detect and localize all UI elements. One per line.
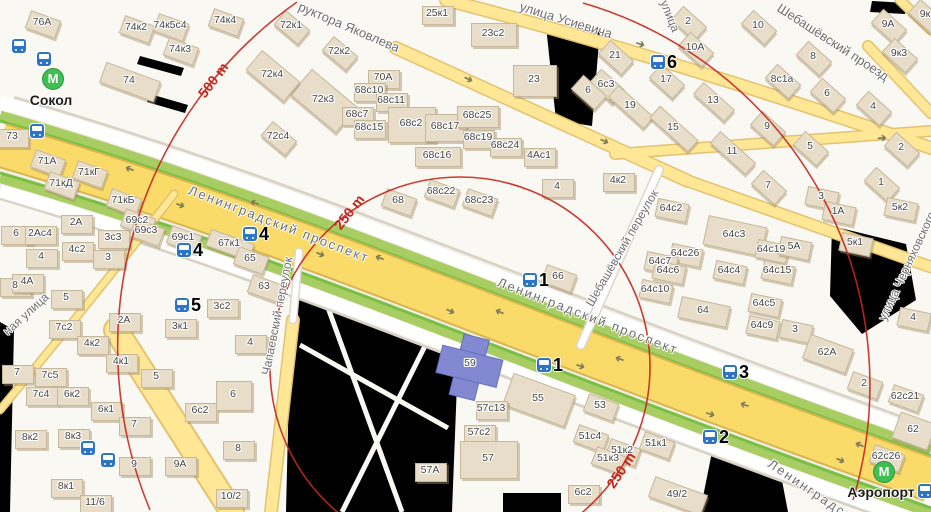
building-number: 63 xyxy=(258,280,270,292)
building-number: 5 xyxy=(807,140,813,152)
building-number: 71кБ xyxy=(111,194,134,206)
building-number: 9к3 xyxy=(891,47,907,59)
building-number: 6 xyxy=(824,87,830,99)
building-number: 5к1 xyxy=(847,236,863,248)
building-number: 8 xyxy=(235,442,241,454)
building-number: 64с3 xyxy=(723,228,746,240)
building-number: 72к3 xyxy=(312,93,334,105)
map-canvas[interactable]: 76А74к274к5с474к374к4747371А71кГ71кД71кБ… xyxy=(0,0,931,512)
building-number: 13 xyxy=(707,94,719,106)
trolleybus-stop-icon[interactable] xyxy=(30,124,44,138)
building-number: 7с2 xyxy=(56,321,73,333)
building-number: 23 xyxy=(528,73,540,85)
building-number: 1А xyxy=(832,205,845,217)
building-number: 74к4 xyxy=(214,14,236,26)
building-number: 64 xyxy=(697,304,709,316)
building-number: 4 xyxy=(247,336,253,348)
building-number: 68с22 xyxy=(427,185,456,197)
trolleybus-stop-icon[interactable] xyxy=(703,430,717,444)
building-number: 53 xyxy=(594,399,606,411)
building-number: 3к1 xyxy=(172,320,188,332)
building-number: 11/6 xyxy=(85,496,105,508)
building-number: 68с25 xyxy=(463,109,492,121)
building-number: 57с13 xyxy=(477,402,506,414)
building-number: 66 xyxy=(552,270,564,282)
trolleybus-stop-icon[interactable] xyxy=(37,52,51,66)
building-number: 23с2 xyxy=(482,27,505,39)
building-number: 64с4 xyxy=(718,264,741,276)
building-number: 8с1а xyxy=(771,73,794,85)
building-number: 4к2 xyxy=(84,337,100,349)
building-number: 4Ас1 xyxy=(527,149,551,161)
building-number: 51с4 xyxy=(579,430,602,442)
building-number: 2 xyxy=(898,141,904,153)
metro-station-icon[interactable]: М xyxy=(42,68,64,90)
building-number: 15 xyxy=(667,121,679,133)
building-number: 8к2 xyxy=(22,431,38,443)
building-number: 68с16 xyxy=(423,149,452,161)
building-number: 9 xyxy=(131,458,137,470)
building-number: 10А xyxy=(686,41,705,53)
trolleybus-stop-icon[interactable] xyxy=(81,441,95,455)
building-number: 3 xyxy=(792,323,798,335)
building-number: 64с5 xyxy=(753,297,776,309)
building-number: 64с26 xyxy=(671,247,700,259)
stop-number[interactable]: 2 xyxy=(719,428,729,446)
building-number: 8 xyxy=(12,279,18,291)
building-number: 71кГ xyxy=(78,166,100,178)
building-number: 72к2 xyxy=(328,45,350,57)
building-number: 62 xyxy=(907,423,919,435)
building-number: 68с19 xyxy=(464,131,493,143)
building-number: 59 xyxy=(464,357,476,369)
building-number: 72к1 xyxy=(280,19,302,31)
building-number: 3с3 xyxy=(105,231,122,243)
building-number: 5А xyxy=(788,240,801,252)
building-number: 68с2 xyxy=(400,117,423,129)
building-number: 8к1 xyxy=(58,480,74,492)
building-number: 57А xyxy=(421,464,440,476)
building-number: 6с2 xyxy=(575,486,592,498)
building-number: 4 xyxy=(910,311,916,323)
building-number: 62с21 xyxy=(891,390,920,402)
building-number: 6к2 xyxy=(64,388,80,400)
building-number: 6 xyxy=(230,388,236,400)
building-number: 76А xyxy=(33,16,52,28)
building-number: 7 xyxy=(14,366,20,378)
building-number: 7 xyxy=(765,179,771,191)
building-number: 1 xyxy=(878,176,884,188)
building-number: 72с4 xyxy=(267,130,290,142)
building-number: 68с11 xyxy=(377,94,405,106)
metro-station-label: Сокол xyxy=(30,92,73,108)
building-number: 3с2 xyxy=(214,300,231,312)
building-number: 68с24 xyxy=(491,139,520,151)
building-number: 64с19 xyxy=(757,243,786,255)
building-number: 67к1 xyxy=(218,237,240,249)
road-direction-arrow: ➔ xyxy=(877,133,887,145)
building-number: 6с3 xyxy=(598,78,615,90)
building-number: 69с1 xyxy=(172,231,195,243)
trolleybus-stop-icon[interactable] xyxy=(523,273,537,287)
building-number: 51к1 xyxy=(645,437,667,449)
metro-station-icon[interactable]: М xyxy=(873,461,895,483)
trolleybus-stop-icon[interactable] xyxy=(12,39,26,53)
building-number: 68с17 xyxy=(431,120,460,132)
building-number: 74к5с4 xyxy=(153,19,186,31)
stop-number[interactable]: 6 xyxy=(667,53,677,71)
building-number: 64с10 xyxy=(641,283,670,295)
building-number: 2А xyxy=(118,314,131,326)
building-number: 4 xyxy=(38,250,44,262)
building-number: 7с4 xyxy=(33,388,50,400)
building-number: 8к3 xyxy=(65,430,81,442)
building-number: 57 xyxy=(482,452,494,464)
building-number: 72к4 xyxy=(261,68,283,80)
building-number: 4к2 xyxy=(610,174,626,186)
trolleybus-stop-icon[interactable] xyxy=(537,358,551,372)
stop-number[interactable]: 4 xyxy=(193,241,203,259)
trolleybus-stop-icon[interactable] xyxy=(918,484,931,498)
building-number: 9к xyxy=(920,8,930,20)
building-number: 5 xyxy=(153,370,159,382)
building-number: 68с23 xyxy=(465,194,494,206)
building-number: 4 xyxy=(870,100,876,112)
building-number: 68 xyxy=(392,194,404,206)
building-number: 62А xyxy=(818,346,837,358)
stop-number[interactable]: 4 xyxy=(259,225,269,243)
building-number: 69с3 xyxy=(135,224,158,236)
building-number: 25к1 xyxy=(426,7,448,19)
building-number: 5 xyxy=(63,291,69,303)
building-number: 49/2 xyxy=(667,488,687,500)
building-number: 6с2 xyxy=(192,404,209,416)
building-number: 4к1 xyxy=(113,355,129,367)
building-number: 2 xyxy=(861,377,867,389)
building-number: 64с15 xyxy=(763,264,792,276)
trolleybus-stop-icon[interactable] xyxy=(651,55,665,69)
building-number: 68с7 xyxy=(346,108,369,120)
building-number: 70А xyxy=(374,71,393,83)
metro-station-label: Аэропорт xyxy=(847,484,914,500)
stop-number[interactable]: 1 xyxy=(553,356,563,374)
building-number: 6к1 xyxy=(98,403,114,415)
building-number: 3 xyxy=(818,190,824,202)
building-number: 64с6 xyxy=(657,264,680,276)
building-number: 6 xyxy=(13,227,19,239)
building-number: 5к2 xyxy=(892,201,908,213)
building-number: 10 xyxy=(752,19,764,31)
building-number: 9А xyxy=(882,18,895,30)
building-number: 71кД xyxy=(49,177,72,189)
trolleybus-stop-icon[interactable] xyxy=(175,298,189,312)
building-number: 57с2 xyxy=(468,426,491,438)
building-number: 64с9 xyxy=(751,319,774,331)
building-number: 68с15 xyxy=(355,121,384,133)
building-number: 21 xyxy=(609,49,621,61)
stop-number[interactable]: 5 xyxy=(191,296,201,314)
building-number: 74к3 xyxy=(169,43,191,55)
building-number: 7с5 xyxy=(42,369,59,381)
building-number: 11 xyxy=(727,145,738,157)
building-number: 2А xyxy=(70,216,83,228)
building-number: 74к2 xyxy=(125,21,147,33)
trolleybus-stop-icon[interactable] xyxy=(101,453,115,467)
trolleybus-stop-icon[interactable] xyxy=(723,365,737,379)
building-number: 71А xyxy=(38,155,57,167)
trolleybus-stop-icon[interactable] xyxy=(243,227,257,241)
building-number: 19 xyxy=(624,99,636,111)
building-number: 17 xyxy=(660,73,672,85)
building-number: 55 xyxy=(532,392,544,404)
building-number: 73 xyxy=(6,130,18,142)
building-number: 7 xyxy=(131,418,137,430)
trolleybus-stop-icon[interactable] xyxy=(177,243,191,257)
building-number: 64с2 xyxy=(660,202,683,214)
building-number: 65 xyxy=(244,252,256,264)
building-number: 4 xyxy=(554,180,560,192)
building-number: 2Ас4 xyxy=(28,227,52,239)
building-number: 4А xyxy=(21,275,34,287)
building-number: 74 xyxy=(123,74,135,86)
building-number: 8 xyxy=(810,50,816,62)
building-number: 4с2 xyxy=(69,243,86,255)
building-number: 10/2 xyxy=(221,490,241,502)
building-number: 9 xyxy=(764,120,770,132)
building-number: 2 xyxy=(685,15,691,27)
building-number: 6 xyxy=(585,84,591,96)
stop-number[interactable]: 1 xyxy=(539,271,549,289)
stop-number[interactable]: 3 xyxy=(739,363,749,381)
building-number: 9А xyxy=(174,458,187,470)
building-number: 3 xyxy=(105,251,111,263)
